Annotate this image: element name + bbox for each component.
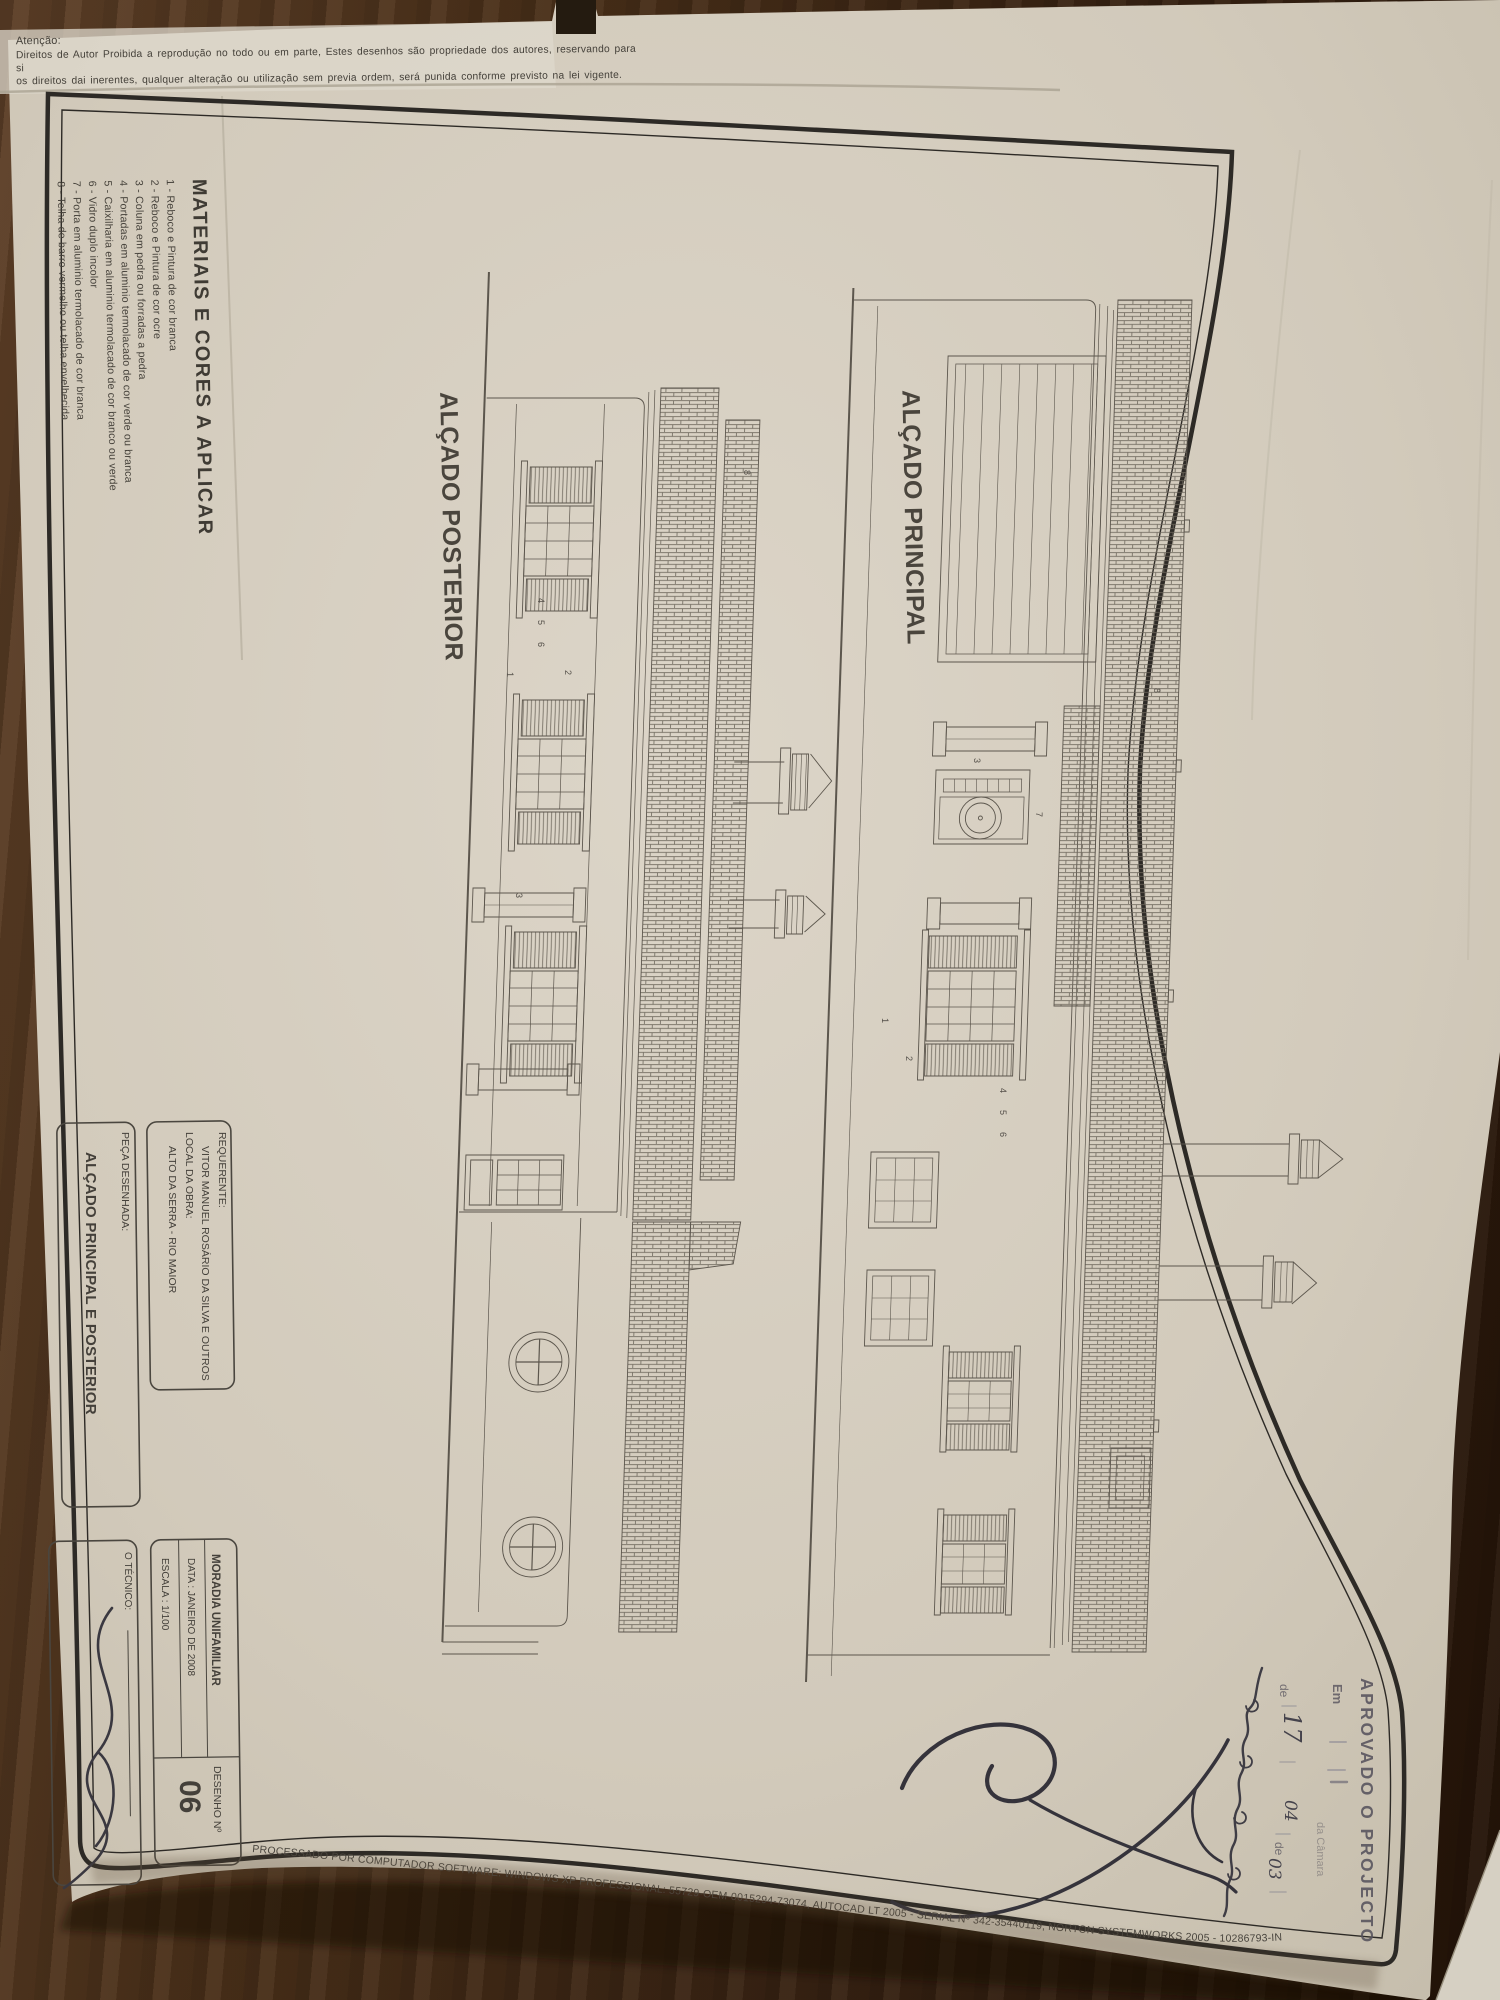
material-ref-number: 6 [536, 642, 546, 647]
stamp-camara-text: da Câmara [1314, 1822, 1326, 1876]
principal-label: ALÇADO PRINCIPAL [895, 390, 929, 645]
material-ref-number: 1 [880, 1018, 890, 1023]
material-ref-number: 2 [904, 1056, 914, 1061]
material-ref-number: 4 [998, 1088, 1008, 1093]
date-value: DATA : JANEIRO DE 2008 [185, 1558, 196, 1676]
scale-value: ESCALA : 1/100 [159, 1558, 170, 1630]
stamp-em-label: Em [1330, 1684, 1345, 1704]
text-layer: Atenção: Direitos de Autor Proibida a re… [0, 0, 1500, 2000]
material-ref-number: 3 [972, 758, 982, 763]
requerente-label: REQUERENTE: [216, 1132, 228, 1208]
stamp-de-label: de [1272, 1842, 1286, 1855]
material-ref-number: 3 [514, 893, 524, 898]
materials-legend: MATERIAIS E CORES A APLICAR 1 - Reboco e… [52, 179, 222, 862]
material-ref-number: 8 [742, 470, 752, 475]
local-obra-value: ALTO DA SERRA - RIO MAIOR [166, 1146, 178, 1293]
materials-title: MATERIAIS E CORES A APLICAR [187, 179, 222, 859]
material-ref-number: 1 [505, 672, 515, 677]
peca-desenhada-value: ALÇADO PRINCIPAL E POSTERIOR [82, 1152, 99, 1415]
tecnico-label: O TÉCNICO: [122, 1552, 133, 1610]
material-ref-number: 7 [1034, 812, 1044, 817]
desenho-number: 06 [172, 1780, 206, 1813]
material-ref-number: 6 [998, 1132, 1008, 1137]
peca-desenhada-label: PEÇA DESENHADA: [119, 1132, 131, 1231]
requerente-value: VITOR MANUEL ROSÁRIO DA SILVA E OUTROS [199, 1146, 211, 1381]
desenho-n-label: DESENHO Nº [211, 1766, 223, 1832]
local-obra-label: LOCAL DA OBRA: [183, 1132, 195, 1219]
approval-stamp-title: APROVADO O PROJECTO [1356, 1678, 1377, 1945]
material-ref-number: 5 [536, 620, 546, 625]
handwritten-year: 03 [1264, 1858, 1284, 1880]
stamp-de-label: de [1277, 1684, 1291, 1697]
posterior-label: ALÇADO POSTERIOR [433, 392, 468, 662]
material-ref-number: 5 [998, 1110, 1008, 1115]
handwritten-month: 04 [1280, 1800, 1300, 1822]
copyright-notice: Atenção: Direitos de Autor Proibida a re… [16, 29, 637, 88]
material-ref-number: 2 [563, 670, 573, 675]
project-type: MORADIA UNIFAMILIAR [209, 1554, 221, 1686]
material-ref-number: 8 [1152, 688, 1162, 693]
photo-of-architectural-drawing: PROCESSADO POR COMPUTADOR SOFTWARE: WIND… [0, 0, 1500, 2000]
handwritten-day: 17 [1278, 1712, 1306, 1743]
material-ref-number: 4 [536, 598, 546, 603]
